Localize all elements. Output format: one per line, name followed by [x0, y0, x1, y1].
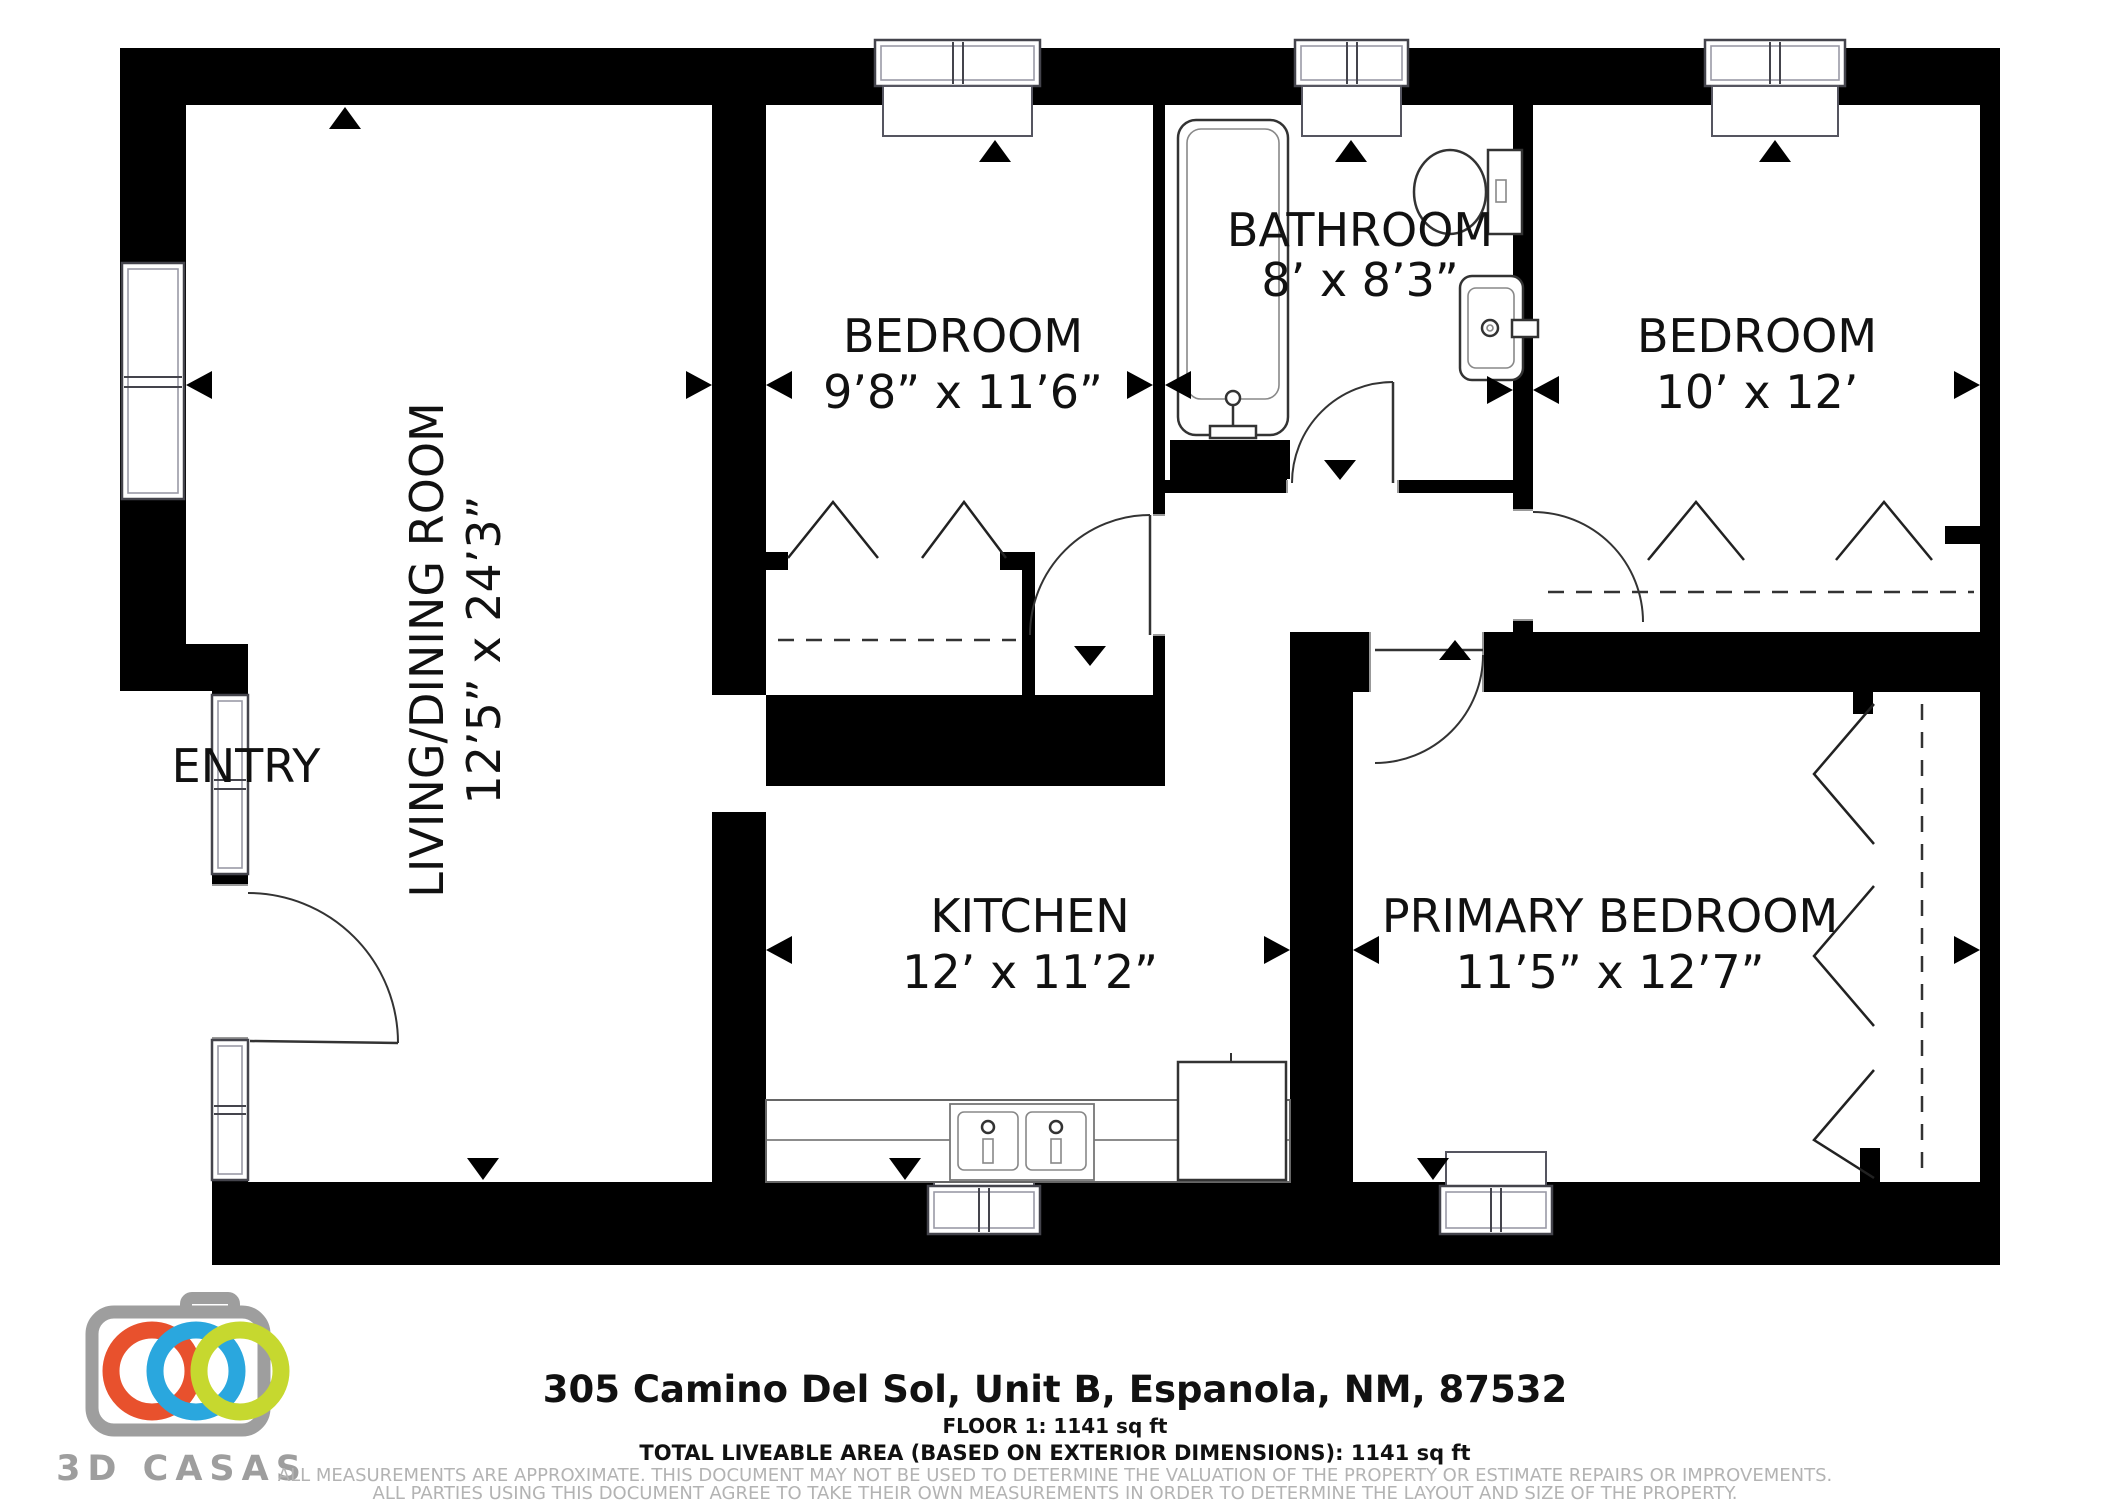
arrow-right-icon — [1264, 936, 1290, 964]
hanger-rod-icon — [788, 502, 878, 558]
arrow-down-icon — [1417, 1158, 1449, 1180]
wall-bedroom1-east — [1153, 105, 1165, 515]
window-bedroom2-top — [1705, 40, 1845, 136]
wall-kitchen-west — [712, 812, 766, 1182]
room-label-kitchen-name: KITCHEN — [930, 889, 1129, 943]
footer-disclaimer-2: ALL PARTIES USING THIS DOCUMENT AGREE TO… — [0, 1483, 2110, 1504]
window-bathroom-top — [1295, 40, 1408, 136]
bathroom-door — [1287, 382, 1398, 493]
arrow-left-icon — [766, 936, 792, 964]
hanger-rod-icon — [1814, 704, 1874, 844]
arrow-up-icon — [329, 107, 361, 129]
wall-hall-top-right — [1398, 480, 1513, 493]
hanger-rod-icon — [1648, 502, 1744, 560]
room-label-bedroom2-name: BEDROOM — [1637, 309, 1877, 363]
wall-bottom — [212, 1182, 2000, 1265]
arrow-left-icon — [186, 371, 212, 399]
stub-closet2-right — [1945, 526, 1980, 544]
wall-right — [1980, 48, 2000, 1265]
room-label-bedroom2-dims: 10’ x 12’ — [1656, 365, 1859, 419]
window-living-left-lower — [212, 1040, 248, 1180]
bedroom2-closet — [1548, 502, 1974, 592]
wall-bedroom2-west-lower — [1513, 620, 1533, 632]
arrow-right-icon — [686, 371, 712, 399]
room-label-primary-name: PRIMARY BEDROOM — [1382, 889, 1838, 943]
room-label-primary-dims: 11’5” x 12’7” — [1456, 945, 1765, 999]
closets — [778, 502, 1974, 1180]
arrow-left-icon — [1353, 936, 1379, 964]
room-label-living-name: LIVING/DINING ROOM — [400, 402, 454, 898]
arrow-up-icon — [979, 140, 1011, 162]
refrigerator — [1178, 1053, 1286, 1180]
arrow-left-icon — [1533, 376, 1559, 404]
stub-closet1-left — [766, 552, 788, 570]
arrow-up-icon — [1335, 140, 1367, 162]
room-label-bedroom1-name: BEDROOM — [843, 309, 1083, 363]
arrow-left-icon — [766, 371, 792, 399]
kitchen-sink — [950, 1104, 1094, 1180]
arrow-right-icon — [1127, 371, 1153, 399]
floor-plan-page: LIVING/DINING ROOM 12’5” x 24’3” BEDROOM… — [0, 0, 2110, 1492]
window-bedroom1-top — [875, 40, 1040, 136]
room-label-bathroom-dims: 8’ x 8’3” — [1261, 253, 1458, 307]
arrow-down-icon — [467, 1158, 499, 1180]
bedroom1-closet — [778, 502, 1016, 640]
wall-left-jog — [120, 644, 248, 691]
room-label-entry: ENTRY — [172, 739, 322, 793]
door-arrow-down-icon — [1324, 460, 1356, 480]
hanger-rod-icon — [1836, 502, 1932, 560]
door-arrow-down-icon — [1074, 646, 1106, 666]
bedroom1-door — [1030, 515, 1165, 666]
window-primary-bottom — [1440, 1152, 1552, 1234]
room-label-bedroom1-dims: 9’8” x 11’6” — [823, 365, 1103, 419]
arrow-up-icon — [1759, 140, 1791, 162]
wall-bedroom2-bottom — [1483, 632, 1980, 692]
wall-living-bedroom1 — [712, 105, 766, 695]
arrow-right-icon — [1954, 371, 1980, 399]
wall-kitchen-primary — [1290, 692, 1353, 1182]
hanger-rod-icon — [922, 502, 1006, 558]
room-label-bathroom-name: BATHROOM — [1227, 203, 1493, 257]
wall-bedroom1-east-lower — [1153, 635, 1165, 695]
wall-hall-bottom-left — [1290, 632, 1370, 692]
footer-floor-area: FLOOR 1: 1141 sq ft — [0, 1414, 2110, 1438]
arrow-right-icon — [1954, 936, 1980, 964]
footer-address: 305 Camino Del Sol, Unit B, Espanola, NM… — [0, 1368, 2110, 1411]
wall-closet1-right — [1022, 552, 1035, 700]
footer-total-area: TOTAL LIVEABLE AREA (BASED ON EXTERIOR D… — [0, 1441, 2110, 1465]
wall-tub-ledge — [1170, 440, 1290, 493]
stub-closet3-top — [1853, 692, 1873, 714]
window-living-left-upper — [122, 263, 184, 499]
room-label-kitchen-dims: 12’ x 11’2” — [902, 945, 1158, 999]
wall-bedroom1-bottom-band — [766, 695, 1165, 786]
room-label-living-dims: 12’5” x 24’3” — [457, 496, 511, 805]
